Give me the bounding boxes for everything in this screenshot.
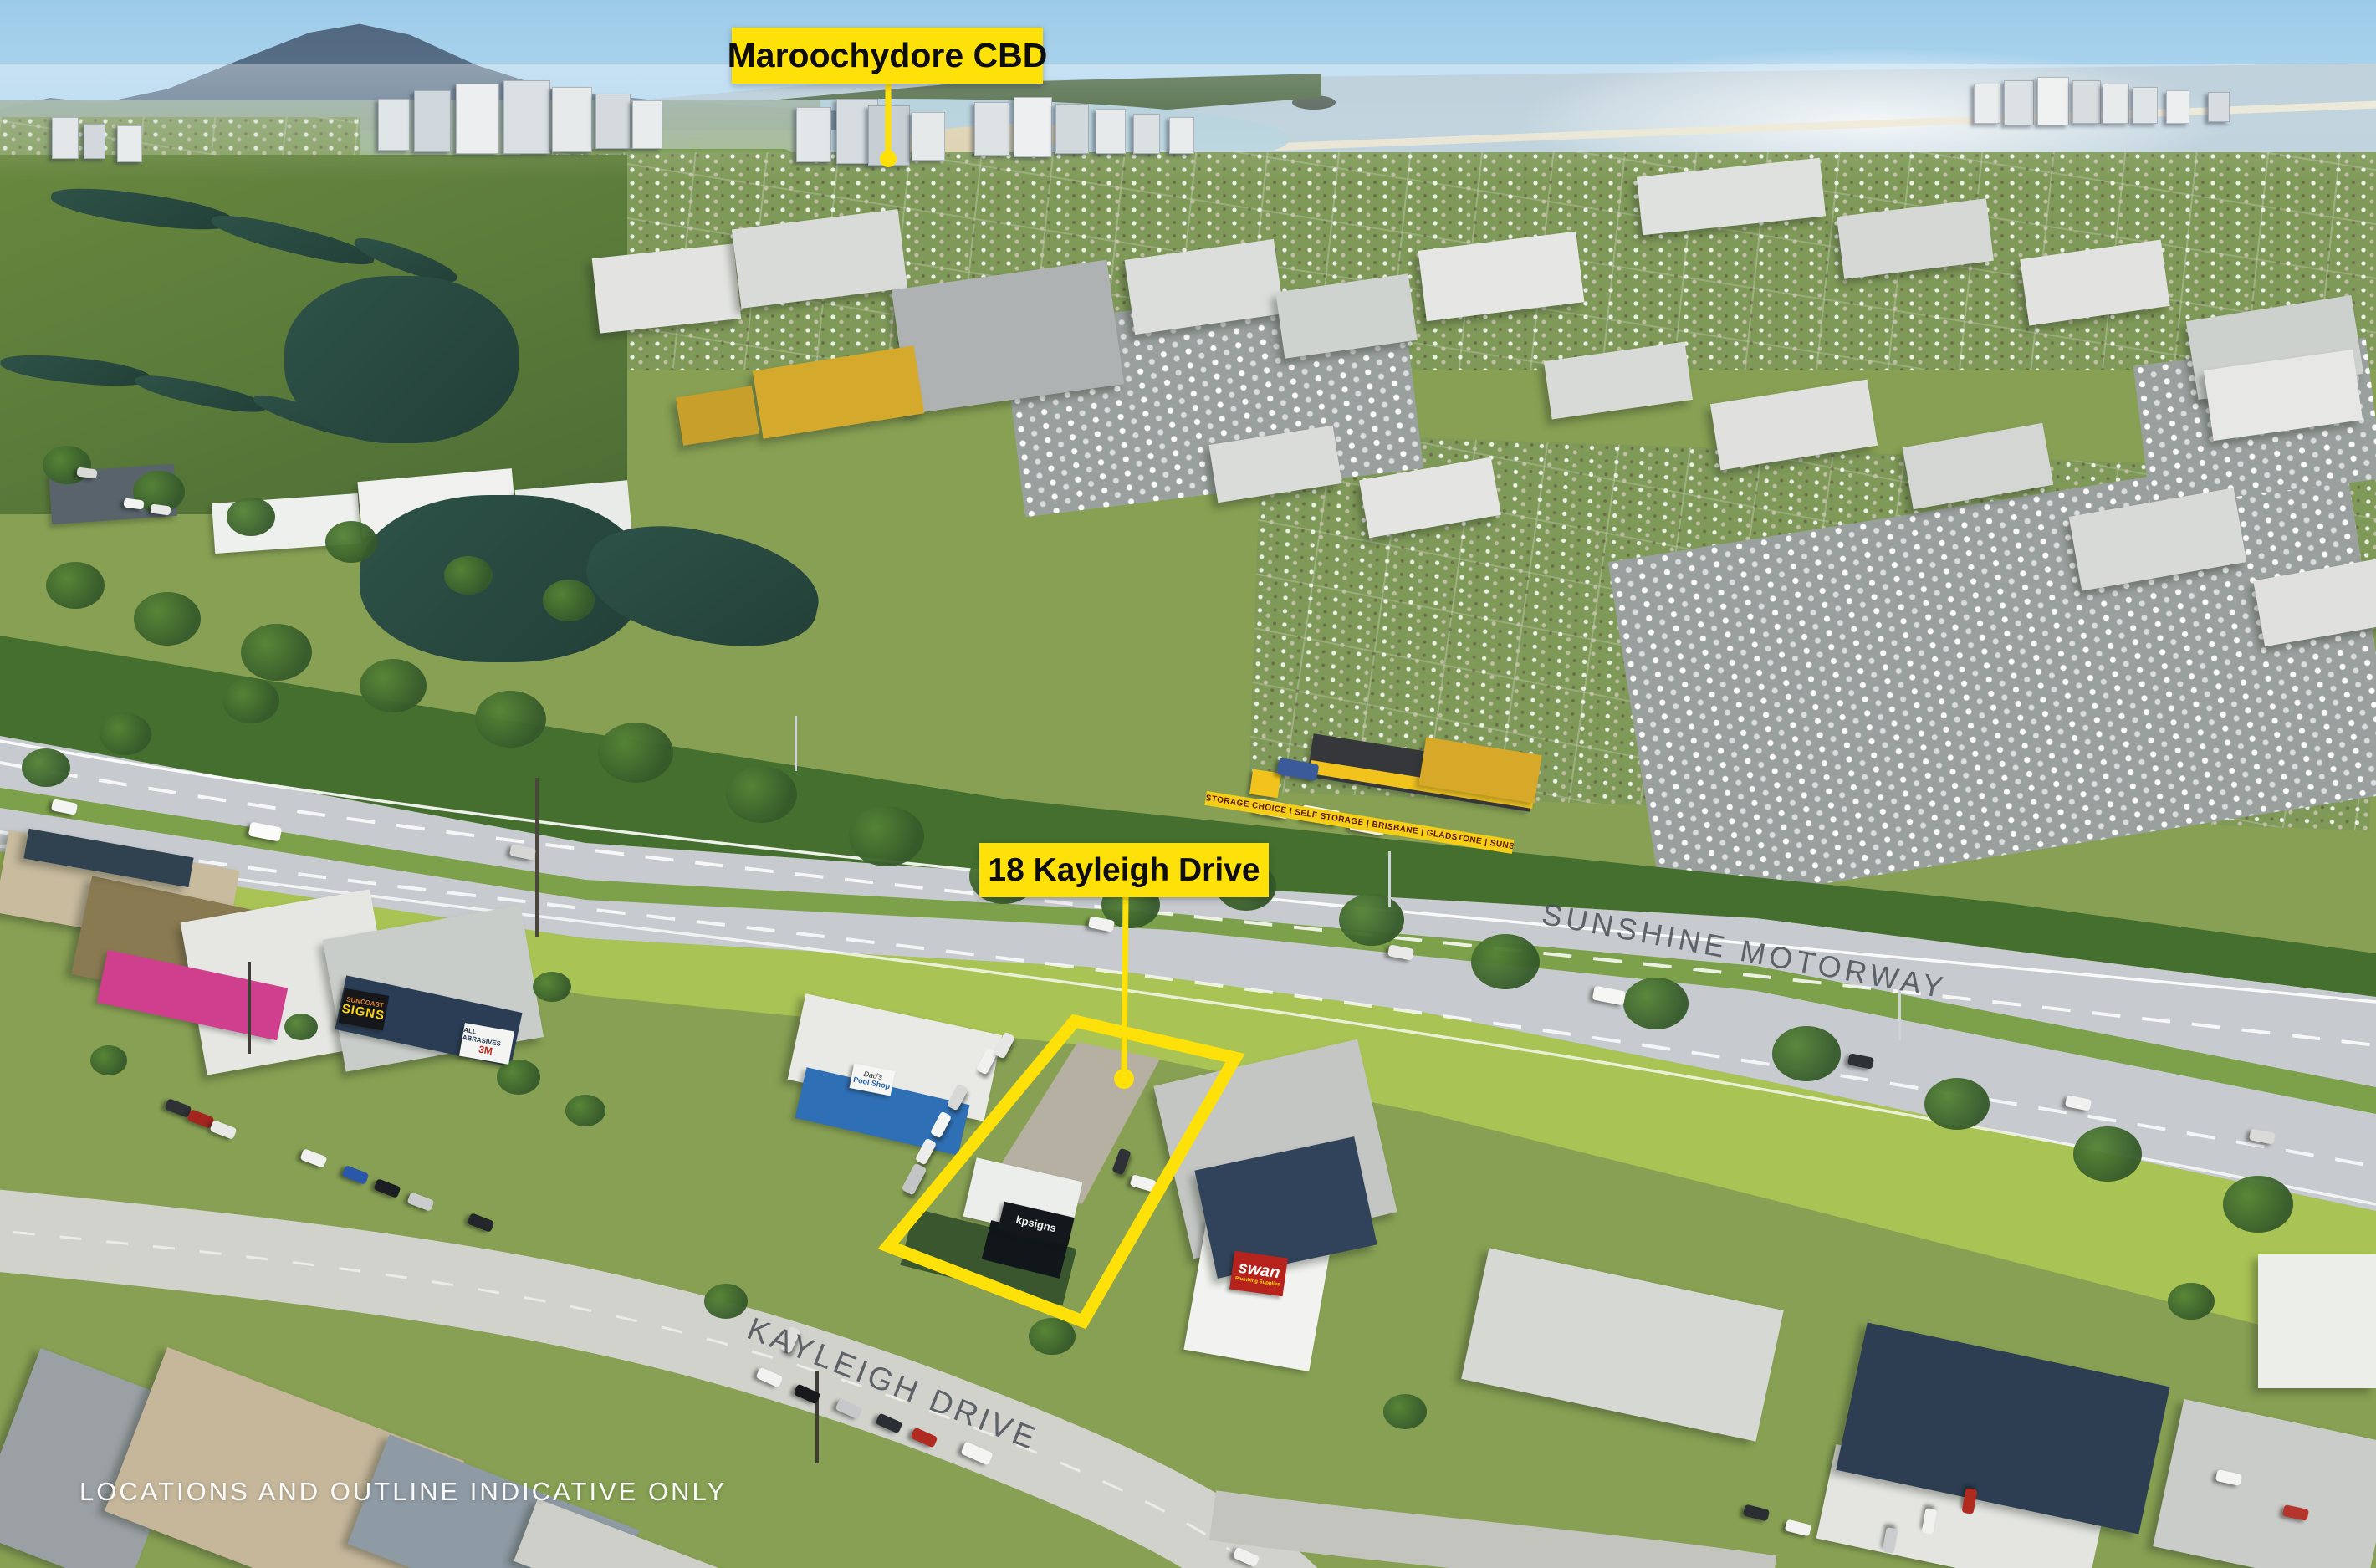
property-outline — [888, 1021, 1235, 1321]
cbd-label: Maroochydore CBD — [732, 28, 1043, 84]
property-label: 18 Kayleigh Drive — [979, 843, 1269, 897]
property-leader-line — [1124, 897, 1126, 1070]
property-label-text: 18 Kayleigh Drive — [988, 852, 1260, 889]
pool-shop-line2: Pool Shop — [852, 1076, 890, 1091]
cbd-label-text: Maroochydore CBD — [728, 36, 1048, 75]
aerial-photo: Maroochydore CBD 18 Kayleigh Drive SUNSH… — [0, 0, 2376, 1568]
cbd-leader-dot — [880, 151, 897, 167]
suncoast-signs-sign: SUNCOAST SIGNS — [339, 988, 389, 1031]
disclaimer-text: LOCATIONS AND OUTLINE INDICATIVE ONLY — [79, 1477, 727, 1507]
three-m-logo: 3M — [478, 1044, 493, 1057]
property-leader-dot — [1114, 1069, 1134, 1089]
swan-sign: swan Plumbing Supplies — [1229, 1251, 1288, 1296]
annotation-overlay — [0, 0, 2376, 1568]
kpsigns-text: kpsigns — [1014, 1213, 1057, 1234]
